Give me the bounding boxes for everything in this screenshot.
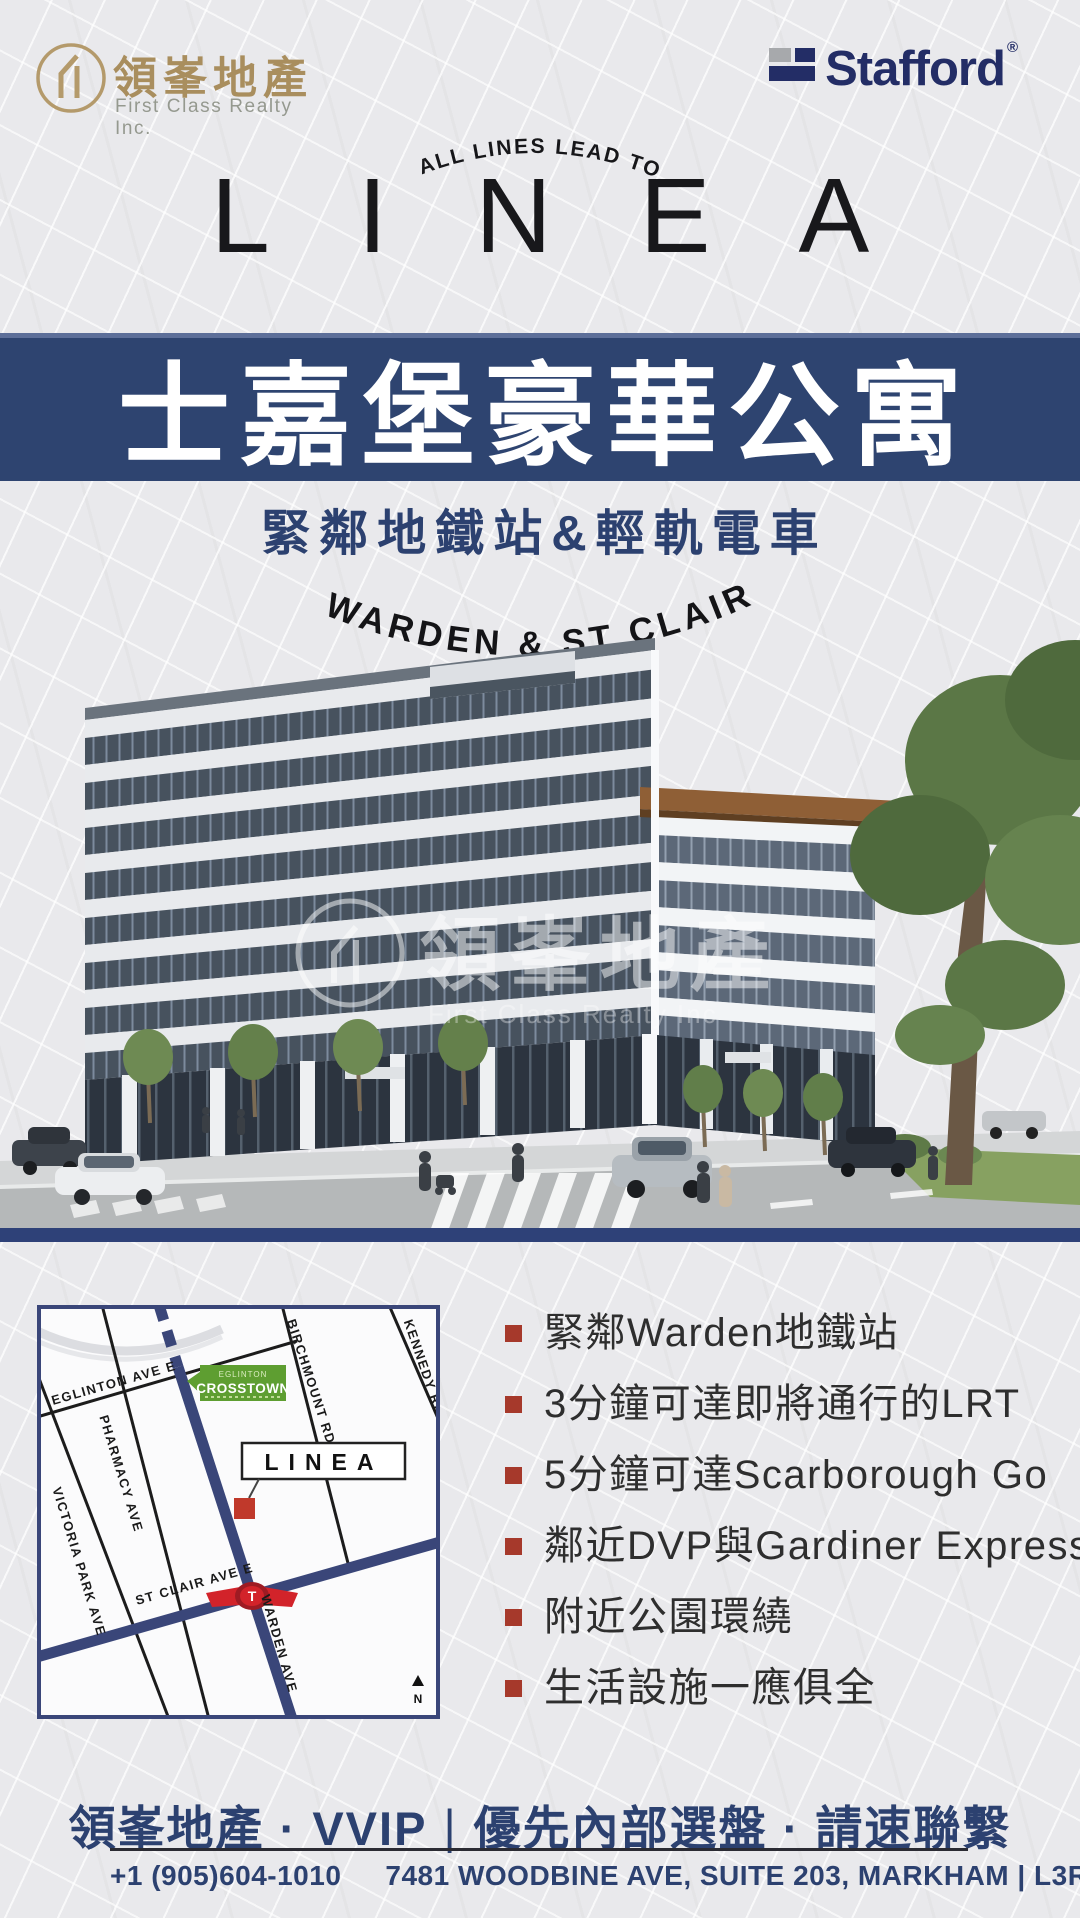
phone-number: +1 (905)604-1010 xyxy=(110,1860,341,1891)
feature-text: 3分鐘可達即將通行的LRT xyxy=(544,1383,1021,1425)
bullet-square-icon xyxy=(505,1609,522,1626)
stafford-registered-mark: ® xyxy=(1007,39,1018,56)
building-rendering: 領峯地產 First Class Realty Inc xyxy=(0,555,1080,1228)
list-item: 3分鐘可達即將通行的LRT xyxy=(505,1383,1065,1425)
first-class-realty-icon xyxy=(33,36,111,120)
watermark-en: First Class Realty Inc xyxy=(428,999,718,1029)
feature-text: 生活設施一應俱全 xyxy=(544,1667,876,1709)
list-item: 鄰近DVP與Gardiner Expressway xyxy=(505,1525,1065,1567)
first-class-realty-logo: 領峯地產 First Class Realty Inc. xyxy=(33,34,333,124)
location-map: EGLINTON CROSSTOWN LINEA T EGLINTON AVE … xyxy=(37,1305,440,1719)
list-item: 附近公園環繞 xyxy=(505,1596,1065,1638)
feature-text: 附近公園環繞 xyxy=(544,1596,793,1638)
project-title: LINEA xyxy=(0,156,1080,277)
feature-list: 緊鄰Warden地鐵站 3分鐘可達即將通行的LRT 5分鐘可達Scarborou… xyxy=(505,1312,1065,1709)
crosstown-badge-main: CROSSTOWN xyxy=(196,1381,290,1396)
watermark-zh: 領峯地產 xyxy=(420,911,780,1000)
crosstown-badge: EGLINTON CROSSTOWN xyxy=(187,1365,290,1401)
bullet-square-icon xyxy=(505,1396,522,1413)
stafford-wordmark: Stafford xyxy=(825,41,1005,97)
cta-separator: | xyxy=(427,1800,473,1853)
first-class-realty-name-en: First Class Realty Inc. xyxy=(115,96,333,140)
headline-banner-text: 士嘉堡豪華公寓 xyxy=(108,326,972,488)
list-item: 生活設施一應俱全 xyxy=(505,1667,1065,1709)
ttc-letter: T xyxy=(248,1588,257,1604)
north-letter: N xyxy=(414,1692,423,1706)
site-marker xyxy=(234,1498,255,1519)
footer-contact: +1 (905)604-10107481 WOODBINE AVE, SUITE… xyxy=(110,1860,1010,1892)
stafford-mark-icon xyxy=(767,44,819,94)
divider-stripe xyxy=(0,1228,1080,1242)
headline-banner: 士嘉堡豪華公寓 xyxy=(0,333,1080,481)
footer-divider xyxy=(110,1848,968,1851)
bullet-square-icon xyxy=(505,1680,522,1697)
crosstown-badge-small: EGLINTON xyxy=(219,1370,268,1379)
bullet-square-icon xyxy=(505,1325,522,1342)
feature-text: 緊鄰Warden地鐵站 xyxy=(544,1312,899,1354)
site-callout-label: LINEA xyxy=(265,1449,384,1475)
feature-text: 5分鐘可達Scarborough Go xyxy=(544,1454,1048,1496)
bullet-square-icon xyxy=(505,1538,522,1555)
list-item: 5分鐘可達Scarborough Go xyxy=(505,1454,1065,1496)
bullet-square-icon xyxy=(505,1467,522,1484)
office-address: 7481 WOODBINE AVE, SUITE 203, MARKHAM | … xyxy=(385,1860,1080,1891)
list-item: 緊鄰Warden地鐵站 xyxy=(505,1312,1065,1354)
stafford-logo: Stafford ® xyxy=(767,42,1016,96)
linea-condo-flyer: 領峯地產 First Class Realty Inc. Stafford ® … xyxy=(0,0,1080,1918)
feature-text: 鄰近DVP與Gardiner Expressway xyxy=(544,1525,1080,1567)
large-tree xyxy=(850,640,1080,1185)
